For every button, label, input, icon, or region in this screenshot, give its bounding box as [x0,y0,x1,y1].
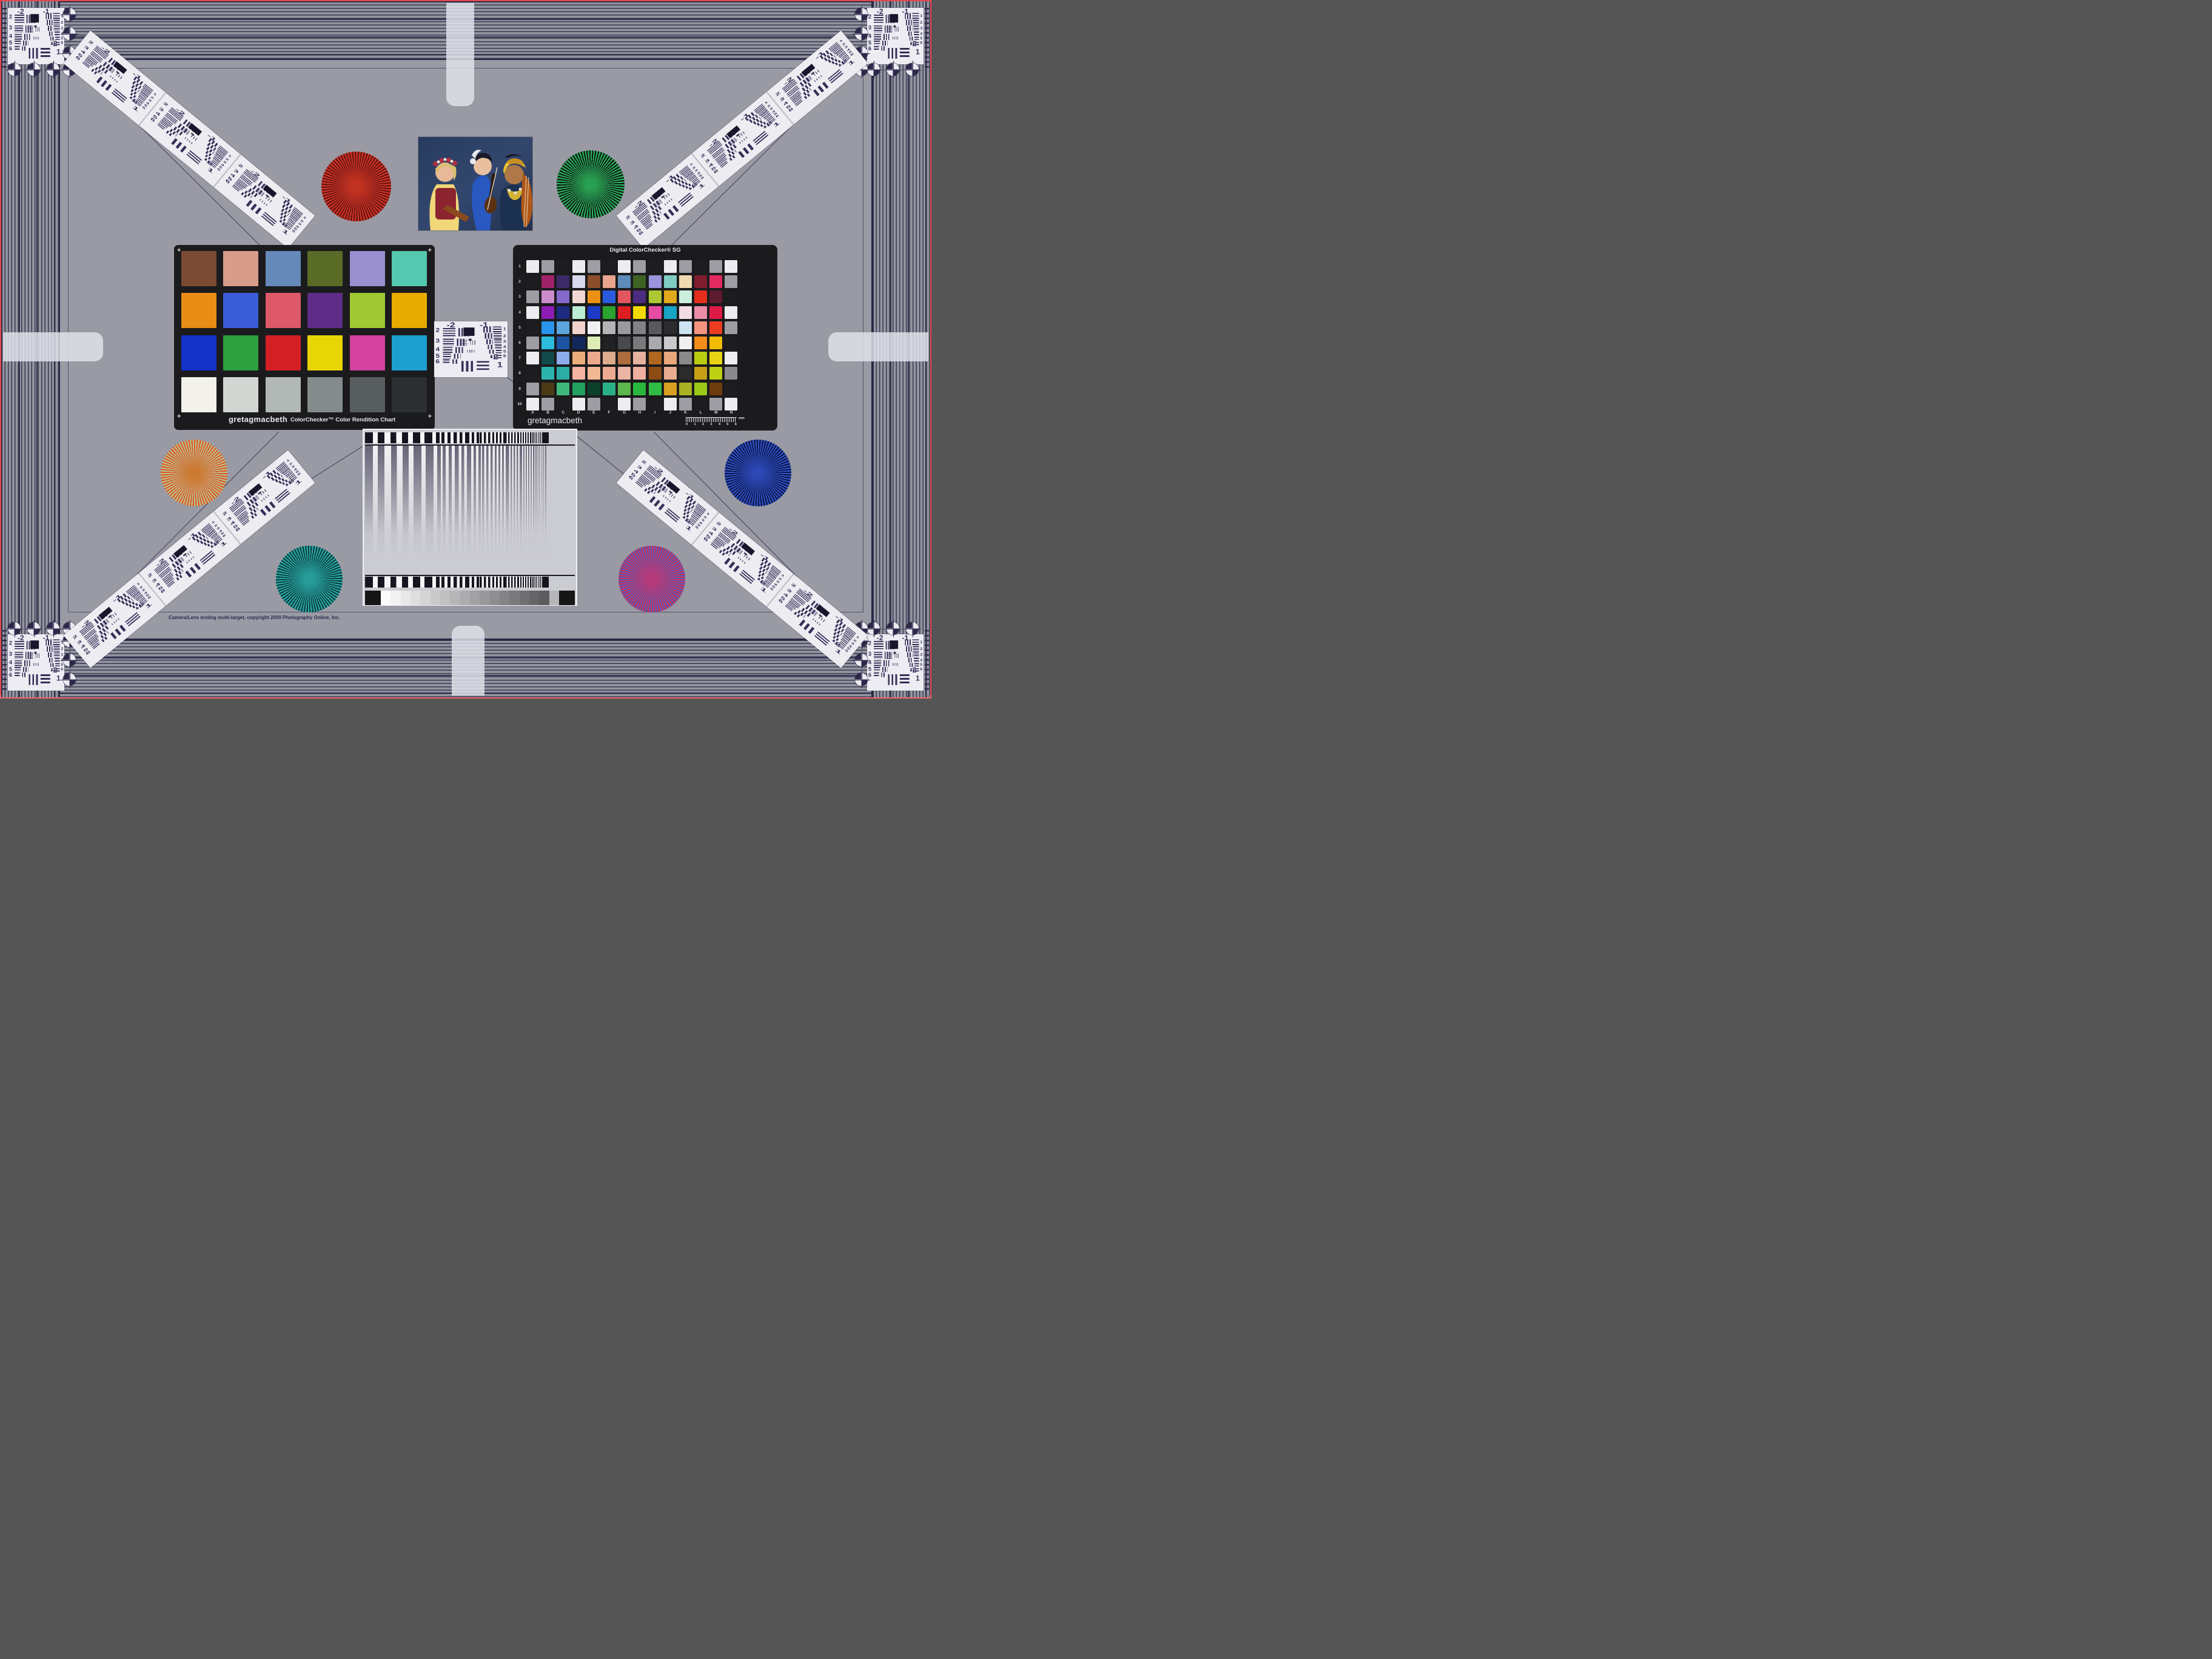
tri-bar-horizontal-large [261,212,277,227]
registration-mark [47,622,59,635]
tri-bar-horizontal-large [125,612,141,627]
color-patch [725,260,737,273]
color-patch [603,367,615,380]
bar-segment [505,577,518,588]
tri-bar-horizontal [54,26,59,31]
bar-segment [390,577,403,588]
usaf-element-number: 5 [61,36,64,41]
sg-column-label: H [633,411,646,415]
usaf-group-number: 2 [700,153,706,159]
color-patch [541,367,554,380]
tri-bar-horizontal [15,672,19,677]
color-patch [572,275,585,288]
center-marker-top [446,3,474,106]
tri-bar-horizontal-large [900,674,910,685]
color-patch [725,275,737,288]
color-patch [694,321,707,334]
tri-bar-horizontal-large [664,508,680,523]
color-patch [694,306,707,319]
usaf-group-number: 2 [716,521,722,527]
tri-bar-horizontal [914,658,919,662]
usaf-element-number: 6 [61,41,64,45]
colorchecker-sg-card: Digital ColorChecker® SG 12345678910 ABC… [513,245,777,431]
ruler-ticks [2,630,7,691]
color-patch [649,383,662,395]
usaf-element-number: 2 [920,21,923,25]
sg-title: Digital ColorChecker® SG [513,247,777,253]
center-marker-bottom [452,626,484,695]
gray-step [411,591,420,605]
color-patch [664,337,677,349]
usaf-resolution-target: -2 -1 2 3 4 5 6 1 2 3 4 5 6 -2 1 [8,8,64,64]
usaf-group-number: 2 [435,328,440,333]
color-patch [618,260,631,273]
usaf-element-number: 4 [503,345,506,349]
tri-bar-vertical [45,639,52,645]
usaf-element-number: 3 [920,27,923,31]
color-patch [618,275,631,288]
registration-mark [27,622,40,635]
color-patch [618,306,631,319]
bar-segment [480,577,492,588]
color-patch [603,352,615,364]
usaf-group-number: 6 [9,46,12,52]
color-patch [649,290,662,303]
gray-step [431,591,440,605]
tri-bar-horizontal [912,639,919,645]
color-patch [603,260,615,273]
color-patch [679,398,692,411]
color-patch [307,293,343,328]
end-cap [543,432,549,443]
sg-row-label: 5 [516,326,523,330]
usaf-group-number: 2 [222,511,228,517]
tri-bar-vertical-large [96,76,113,92]
sg-ruler-number: 2 [702,423,704,426]
sg-patch-grid [526,260,737,411]
color-patch [709,260,722,273]
color-patch [603,383,615,395]
colorchecker-patch-grid [181,251,427,412]
colorchecker-classic-card: + + + + gretagmacbeth ColorChecker™ Colo… [174,245,435,430]
usaf-group-number: 2 [72,634,78,640]
color-patch [679,290,692,303]
tri-bar-horizontal [914,32,919,36]
usaf-element-number: 5 [503,350,506,354]
bar-segment [429,577,441,588]
tri-bar-vertical [906,646,911,652]
usaf-element-number: 5 [920,663,923,667]
tri-bar-vertical [22,46,26,50]
gray-step [365,591,381,605]
usaf-group-number: 2 [9,15,12,20]
color-patch [350,335,385,370]
color-patch [694,367,707,380]
reference-black-square [463,327,474,336]
bar-segment [365,577,378,588]
color-patch [526,275,539,288]
usaf-element-number: 6 [920,668,923,672]
color-patch [633,260,646,273]
color-patch [709,367,722,380]
color-patch [649,337,662,349]
color-patch [633,352,646,364]
sg-row-label: 4 [516,310,523,315]
color-patch [526,398,539,411]
tri-bar-horizontal [53,20,59,25]
usaf-group-number: 6 [868,46,871,52]
usaf-element-number: 3 [920,653,923,657]
color-patch [557,367,569,380]
tri-bar-horizontal [874,641,883,649]
end-cap [543,577,549,588]
corner-target-top-right: -2 -1 2 3 4 5 6 1 2 3 4 5 6 -2 1 [855,2,929,76]
tri-bar-horizontal [443,354,451,358]
micro-pattern-cluster [28,25,42,40]
tri-bar-horizontal-large [111,89,127,104]
tri-bar-vertical [486,339,493,344]
tri-bar-horizontal [15,41,21,45]
registration-mark [63,654,76,666]
gray-step [529,591,539,605]
sg-row-label: 2 [516,280,523,284]
color-patch [181,293,216,328]
color-patch [557,290,569,303]
registration-mark [855,673,868,686]
usaf-group-number: 6 [713,169,719,175]
color-patch [350,293,385,328]
reference-black-square [890,640,898,649]
color-patch [694,290,707,303]
color-patch [557,352,569,364]
tri-bar-vertical-large [738,143,754,158]
color-patch [541,383,554,395]
tri-bar-horizontal [15,652,23,659]
tri-bar-horizontal [874,15,883,23]
tri-bar-vertical-large [171,138,187,153]
color-patch [694,398,707,411]
sg-column-label: L [694,411,707,415]
color-patch [633,367,646,380]
color-patch [266,251,301,286]
usaf-group-number: 4 [435,347,440,352]
sg-row-label: 1 [516,264,523,269]
color-patch [725,337,737,349]
sg-column-label: J [664,411,677,415]
usaf-group-number: 6 [638,230,645,236]
color-patch [541,306,554,319]
sg-column-label: N [725,411,738,415]
registration-mark [27,63,40,76]
color-patch [557,321,569,334]
usaf-label-one: 1 [56,674,61,682]
tri-bar-vertical-large [888,674,897,685]
tri-bar-vertical [882,667,887,672]
color-patch [679,306,692,319]
corner-cross-mark: + [177,247,181,254]
tri-bar-horizontal [443,328,455,337]
gray-step [490,591,500,605]
color-patch [649,367,662,380]
sg-ruler-number: 6 [735,423,737,426]
color-patch [572,398,585,411]
tri-bar-horizontal [494,339,501,344]
usaf-element-number: 5 [61,663,64,667]
color-patch [541,321,554,334]
reference-black-square [30,14,39,22]
color-patch [633,383,646,395]
siemens-star-red [321,152,391,221]
tri-bar-vertical-large [260,501,276,516]
color-patch [181,377,216,412]
usaf-group-number: 4 [868,34,871,39]
siemens-star-red-blue [618,546,685,612]
sg-brand: gretagmacbeth [528,416,582,425]
bar-segment [531,577,543,588]
sg-ruler-number: 4 [719,423,720,426]
usaf-element-number: 1 [920,640,923,645]
color-patch [633,321,646,334]
usaf-group-number: 6 [868,672,871,678]
tri-bar-vertical [48,26,53,31]
sg-row-label: 9 [516,387,523,391]
color-patch [633,275,646,288]
color-patch [709,275,722,288]
sg-ruler-ticks [686,417,737,422]
registration-mark [855,654,868,666]
sg-column-label: C [557,411,569,415]
tri-bar-vertical [22,672,26,677]
tri-bar-horizontal [874,46,879,50]
tri-bar-horizontal [15,25,23,33]
tri-bar-horizontal-large [828,69,844,84]
color-patch [633,337,646,349]
tri-bar-vertical-large [28,48,38,59]
usaf-group-number: 3 [435,339,440,344]
registration-mark [886,63,899,76]
usaf-element-number: 1 [920,14,923,18]
gray-step [440,591,450,605]
micro-pattern-cluster [888,652,901,666]
color-patch [633,306,646,319]
usaf-group-number: 6 [435,360,440,365]
color-patch [725,321,737,334]
color-patch [725,290,737,303]
camera-lens-test-chart: -2 -1 2 3 4 5 6 1 2 3 4 5 6 -2 1 -2 -1 2… [0,0,931,699]
tri-bar-vertical-large [110,624,127,639]
color-patch [603,275,615,288]
color-patch [679,383,692,395]
color-patch [350,377,385,412]
color-patch [618,383,631,395]
bar-segment [403,577,416,588]
usaf-group-number: 2 [868,15,871,20]
color-patch [603,306,615,319]
color-patch [266,293,301,328]
tri-bar-vertical [23,41,28,45]
usaf-group-number: 6 [85,650,92,656]
sg-column-label: D [572,411,585,415]
color-patch [572,352,585,364]
usaf-group-number: 2 [163,101,169,107]
registration-mark [906,622,919,635]
color-patch [526,383,539,395]
corner-cross-mark: + [428,414,432,420]
gray-step [381,591,390,605]
micro-pattern-cluster [888,25,901,40]
tri-bar-horizontal [443,347,452,353]
center-resolution-target: -2 -1 2 3 4 5 6 1 2 3 4 5 6 -2 1 [434,321,508,377]
bar-segment [505,432,518,443]
tri-bar-vertical [907,652,912,657]
registration-mark [63,673,76,686]
color-patch [664,321,677,334]
color-patch [181,251,216,286]
gray-step [480,591,489,605]
color-patch [392,251,427,286]
usaf-group-number: 6 [9,672,12,678]
color-patch [526,352,539,364]
color-patch [541,337,554,349]
color-patch [725,398,737,411]
sg-ruler-number: 0 [686,423,688,426]
color-patch [266,335,301,370]
color-patch [392,377,427,412]
tri-bar-horizontal [15,660,22,666]
sg-row-label: 3 [516,295,523,299]
ruler-ticks [2,8,7,69]
tri-bar-horizontal [495,345,502,349]
usaf-label-one: 1 [220,540,227,548]
bar-segment [390,432,403,443]
copyright-text: Camera/Lens testing multi-target, copyri… [169,615,340,620]
registration-mark [855,27,868,40]
tri-bar-horizontal [874,25,882,33]
color-patch [588,352,600,364]
center-marker-left [3,332,103,361]
color-patch [541,260,554,273]
tri-bar-vertical [452,360,458,364]
usaf-label-neg2-bottom: -2 [51,666,58,674]
bar-segment [416,432,429,443]
siemens-star-blue [725,440,791,506]
bar-segment [518,577,531,588]
tri-bar-horizontal [443,360,449,364]
color-patch [588,306,600,319]
gray-step [539,591,549,605]
bar-segment [467,577,480,588]
tri-bar-vertical [47,20,52,25]
registration-mark [47,63,59,76]
color-patch [679,337,692,349]
tri-bar-horizontal-large [753,131,769,146]
usaf-label-neg2-bottom: -2 [910,666,917,674]
gray-step [520,591,529,605]
color-patch [588,367,600,380]
tri-bar-vertical [882,41,887,45]
color-patch [541,290,554,303]
bar-segment [454,432,467,443]
bar-segment [416,577,429,588]
color-patch [679,367,692,380]
tri-bar-horizontal [15,34,22,40]
color-patch [350,251,385,286]
bar-segment [378,432,390,443]
usaf-group-number: 2 [790,583,796,589]
sg-ruler-unit: mm [739,417,745,420]
bar-segment [467,432,480,443]
sg-column-label: I [649,411,662,415]
color-patch [649,398,662,411]
color-patch [588,321,600,334]
tri-bar-vertical [905,639,911,645]
color-patch [572,367,585,380]
usaf-element-number: 4 [920,659,923,663]
usaf-element-number: 2 [503,334,506,338]
usaf-element-number: 2 [920,647,923,651]
color-patch [679,321,692,334]
tri-bar-vertical-large [724,558,740,573]
usaf-group-number: 4 [868,660,871,666]
gray-step [420,591,430,605]
usaf-label-one: 1 [916,48,920,55]
tri-bar-horizontal [54,652,59,657]
sg-ruler-number: 1 [694,423,695,426]
tri-bar-vertical [454,354,460,358]
tri-bar-vertical-large [813,81,829,96]
color-patch [709,290,722,303]
colorchecker-title: ColorChecker™ Color Rendition Chart [290,417,395,423]
gray-step [500,591,509,605]
color-patch [633,398,646,411]
color-patch [572,306,585,319]
siemens-star-green [557,150,625,218]
tri-bar-horizontal-large [275,489,291,504]
color-patch [618,337,631,349]
gray-step [390,591,400,605]
usaf-group-number: 2 [237,163,243,169]
color-patch [618,398,631,411]
gray-step [460,591,470,605]
color-patch [223,293,258,328]
usaf-group-number: 2 [868,641,871,646]
bar-segment [531,432,543,443]
tri-bar-vertical [905,13,911,19]
tri-bar-horizontal [913,652,919,657]
registration-mark [63,8,76,21]
tri-bar-vertical-large [649,496,666,511]
usaf-element-number: 5 [920,36,923,41]
usaf-group-number: 2 [9,641,12,646]
color-patch [664,367,677,380]
tri-bar-vertical-large [663,204,680,220]
color-patch [603,398,615,411]
usaf-resolution-target: -2 -1 2 3 4 5 6 1 2 3 4 5 6 -2 1 [867,8,923,64]
siemens-star-orange-green [161,440,227,506]
color-patch [588,290,600,303]
tri-bar-vertical-large [246,199,263,215]
usaf-group-number: 4 [9,34,12,39]
color-patch [572,260,585,273]
usaf-label-one: 1 [847,59,855,67]
sg-ruler-numbers: 0123456 [686,423,737,426]
tri-bar-horizontal [15,641,24,649]
color-patch [664,275,677,288]
bar-segment [403,432,416,443]
tri-bar-horizontal [53,13,59,19]
registration-mark [63,27,76,40]
color-patch [649,352,662,364]
